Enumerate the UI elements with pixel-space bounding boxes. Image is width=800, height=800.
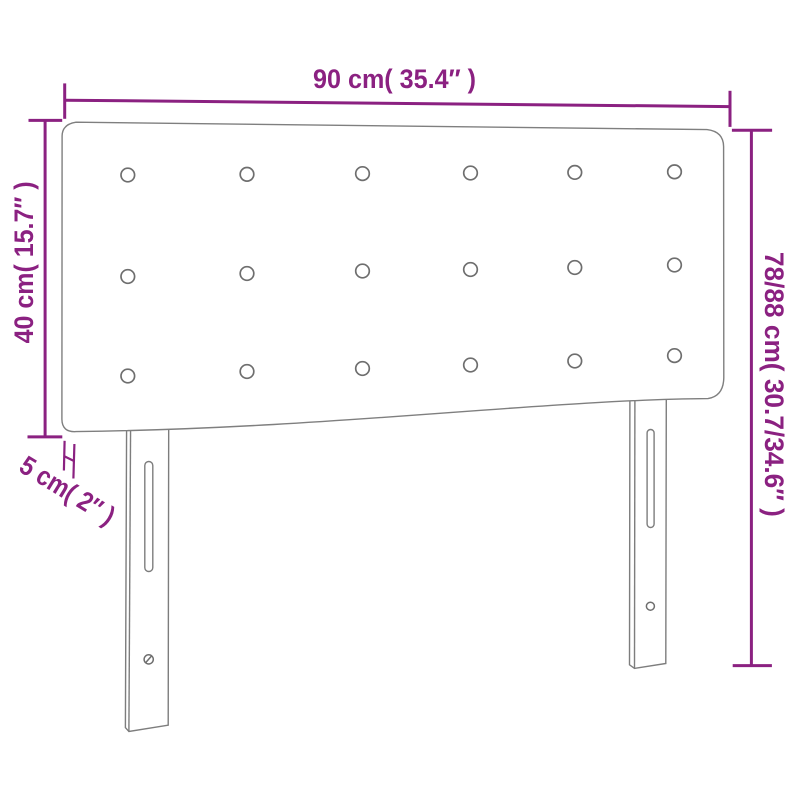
svg-text:78/88 cm( 30.7/34.6″ ): 78/88 cm( 30.7/34.6″ ) [759,252,789,517]
svg-text:90 cm( 35.4″ ): 90 cm( 35.4″ ) [313,64,476,94]
svg-text:40 cm( 15.7″ ): 40 cm( 15.7″ ) [9,181,39,343]
